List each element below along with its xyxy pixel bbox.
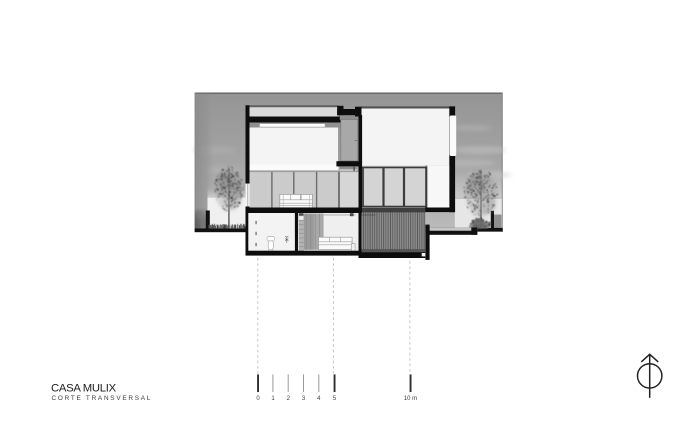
svg-text:CORTE TRANSVERSAL: CORTE TRANSVERSAL [52, 395, 153, 402]
svg-text:CASA MULIX: CASA MULIX [51, 383, 117, 395]
svg-text:10 m: 10 m [404, 396, 417, 402]
